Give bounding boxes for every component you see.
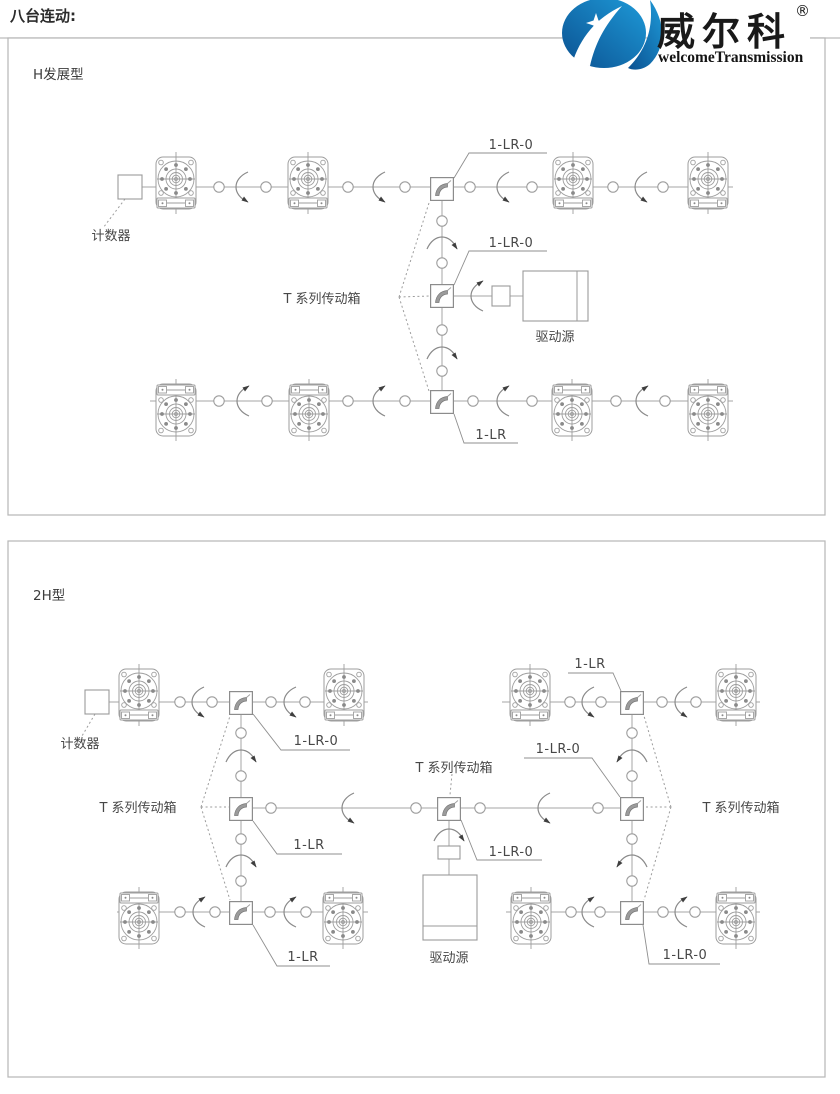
corner-gearbox bbox=[621, 692, 644, 715]
corner-gearbox bbox=[230, 798, 253, 821]
catalog-page: 八台连动: H发展型 bbox=[0, 0, 840, 1094]
label-counter: 计数器 bbox=[91, 229, 130, 244]
gearbox-unit bbox=[156, 379, 196, 441]
coupling bbox=[527, 182, 537, 192]
coupling bbox=[608, 182, 618, 192]
coupling bbox=[210, 907, 220, 917]
gearbox-unit bbox=[324, 664, 364, 726]
panel-2h-type: 2H型 bbox=[8, 541, 825, 1077]
label-counter: 计数器 bbox=[60, 737, 99, 752]
label-1-lr-0: 1-LR-0 bbox=[489, 845, 534, 860]
coupling bbox=[658, 907, 668, 917]
gearbox-unit bbox=[716, 664, 756, 726]
coupling bbox=[690, 907, 700, 917]
label-1-lr: 1-LR bbox=[574, 657, 605, 672]
motor-coupling bbox=[438, 846, 460, 859]
coupling bbox=[301, 907, 311, 917]
drive-motor bbox=[523, 271, 588, 321]
coupling bbox=[660, 396, 670, 406]
coupling bbox=[475, 803, 485, 813]
corner-gearbox bbox=[621, 798, 644, 821]
gearbox-unit bbox=[688, 152, 728, 214]
coupling bbox=[465, 182, 475, 192]
gearbox-unit bbox=[552, 379, 592, 441]
coupling bbox=[437, 366, 447, 376]
gearbox-unit bbox=[323, 887, 363, 949]
coupling bbox=[595, 907, 605, 917]
label-drive-source: 驱动源 bbox=[535, 330, 574, 345]
coupling bbox=[214, 396, 224, 406]
coupling bbox=[627, 876, 637, 886]
label-drive-source: 驱动源 bbox=[429, 951, 468, 966]
coupling bbox=[236, 728, 246, 738]
coupling bbox=[175, 907, 185, 917]
label-1-lr: 1-LR bbox=[287, 950, 318, 965]
coupling bbox=[437, 325, 447, 335]
coupling bbox=[300, 697, 310, 707]
corner-gearbox bbox=[431, 178, 454, 201]
corner-gearbox bbox=[431, 391, 454, 414]
label-t-series: T 系列传动箱 bbox=[98, 800, 176, 816]
panel-h-type: H发展型 bbox=[8, 38, 825, 515]
brand-logo: 威尔科 ® welcomeTransmission bbox=[562, 0, 810, 70]
coupling bbox=[437, 216, 447, 226]
gearbox-unit bbox=[511, 887, 551, 949]
label-1-lr-0: 1-LR-0 bbox=[663, 948, 708, 963]
coupling bbox=[691, 697, 701, 707]
coupling bbox=[343, 396, 353, 406]
coupling bbox=[566, 907, 576, 917]
gearbox-unit bbox=[119, 887, 159, 949]
coupling bbox=[236, 834, 246, 844]
corner-gearbox bbox=[230, 902, 253, 925]
coupling bbox=[527, 396, 537, 406]
counter-box bbox=[85, 690, 109, 714]
coupling bbox=[658, 182, 668, 192]
coupling bbox=[265, 907, 275, 917]
coupling bbox=[657, 697, 667, 707]
label-1-lr-0: 1-LR-0 bbox=[489, 138, 534, 153]
coupling bbox=[596, 697, 606, 707]
coupling bbox=[214, 182, 224, 192]
coupling bbox=[627, 728, 637, 738]
label-1-lr-0: 1-LR-0 bbox=[536, 742, 581, 757]
coupling bbox=[343, 182, 353, 192]
gearbox-unit bbox=[553, 152, 593, 214]
coupling bbox=[411, 803, 421, 813]
coupling bbox=[236, 771, 246, 781]
corner-gearbox bbox=[230, 692, 253, 715]
coupling bbox=[207, 697, 217, 707]
transmission-diagram: 八台连动: H发展型 bbox=[0, 0, 840, 1094]
drive-motor bbox=[423, 875, 477, 940]
corner-gearbox bbox=[621, 902, 644, 925]
brand-name: 威尔科 bbox=[657, 10, 792, 54]
label-1-lr: 1-LR bbox=[293, 838, 324, 853]
coupling bbox=[236, 876, 246, 886]
label-1-lr: 1-LR bbox=[475, 428, 506, 443]
gearbox-unit bbox=[289, 379, 329, 441]
coupling bbox=[627, 834, 637, 844]
coupling bbox=[261, 182, 271, 192]
corner-gearbox bbox=[438, 798, 461, 821]
label-t-series: T 系列传动箱 bbox=[282, 291, 360, 307]
coupling bbox=[262, 396, 272, 406]
coupling bbox=[437, 258, 447, 268]
panel-border bbox=[8, 38, 825, 515]
gearbox-unit bbox=[288, 152, 328, 214]
gearbox-unit bbox=[156, 152, 196, 214]
gearbox-unit bbox=[510, 664, 550, 726]
registered-mark: ® bbox=[795, 2, 810, 20]
coupling bbox=[565, 697, 575, 707]
label-t-series: T 系列传动箱 bbox=[701, 800, 779, 816]
coupling bbox=[400, 182, 410, 192]
coupling bbox=[175, 697, 185, 707]
corner-gearbox bbox=[431, 285, 454, 308]
gearbox-unit bbox=[688, 379, 728, 441]
counter-box bbox=[118, 175, 142, 199]
coupling bbox=[266, 697, 276, 707]
coupling bbox=[468, 396, 478, 406]
coupling bbox=[611, 396, 621, 406]
label-1-lr-0: 1-LR-0 bbox=[294, 734, 339, 749]
motor-coupling bbox=[492, 286, 510, 306]
panel-type-label: H发展型 bbox=[33, 67, 84, 83]
label-1-lr-0: 1-LR-0 bbox=[489, 236, 534, 251]
page-title: 八台连动: bbox=[9, 7, 76, 25]
gearbox-unit bbox=[119, 664, 159, 726]
coupling bbox=[627, 771, 637, 781]
gearbox-unit bbox=[716, 887, 756, 949]
brand-subtitle: welcomeTransmission bbox=[658, 49, 804, 66]
coupling bbox=[400, 396, 410, 406]
panel-type-label: 2H型 bbox=[33, 588, 65, 604]
label-t-series: T 系列传动箱 bbox=[414, 760, 492, 776]
coupling bbox=[593, 803, 603, 813]
coupling bbox=[266, 803, 276, 813]
